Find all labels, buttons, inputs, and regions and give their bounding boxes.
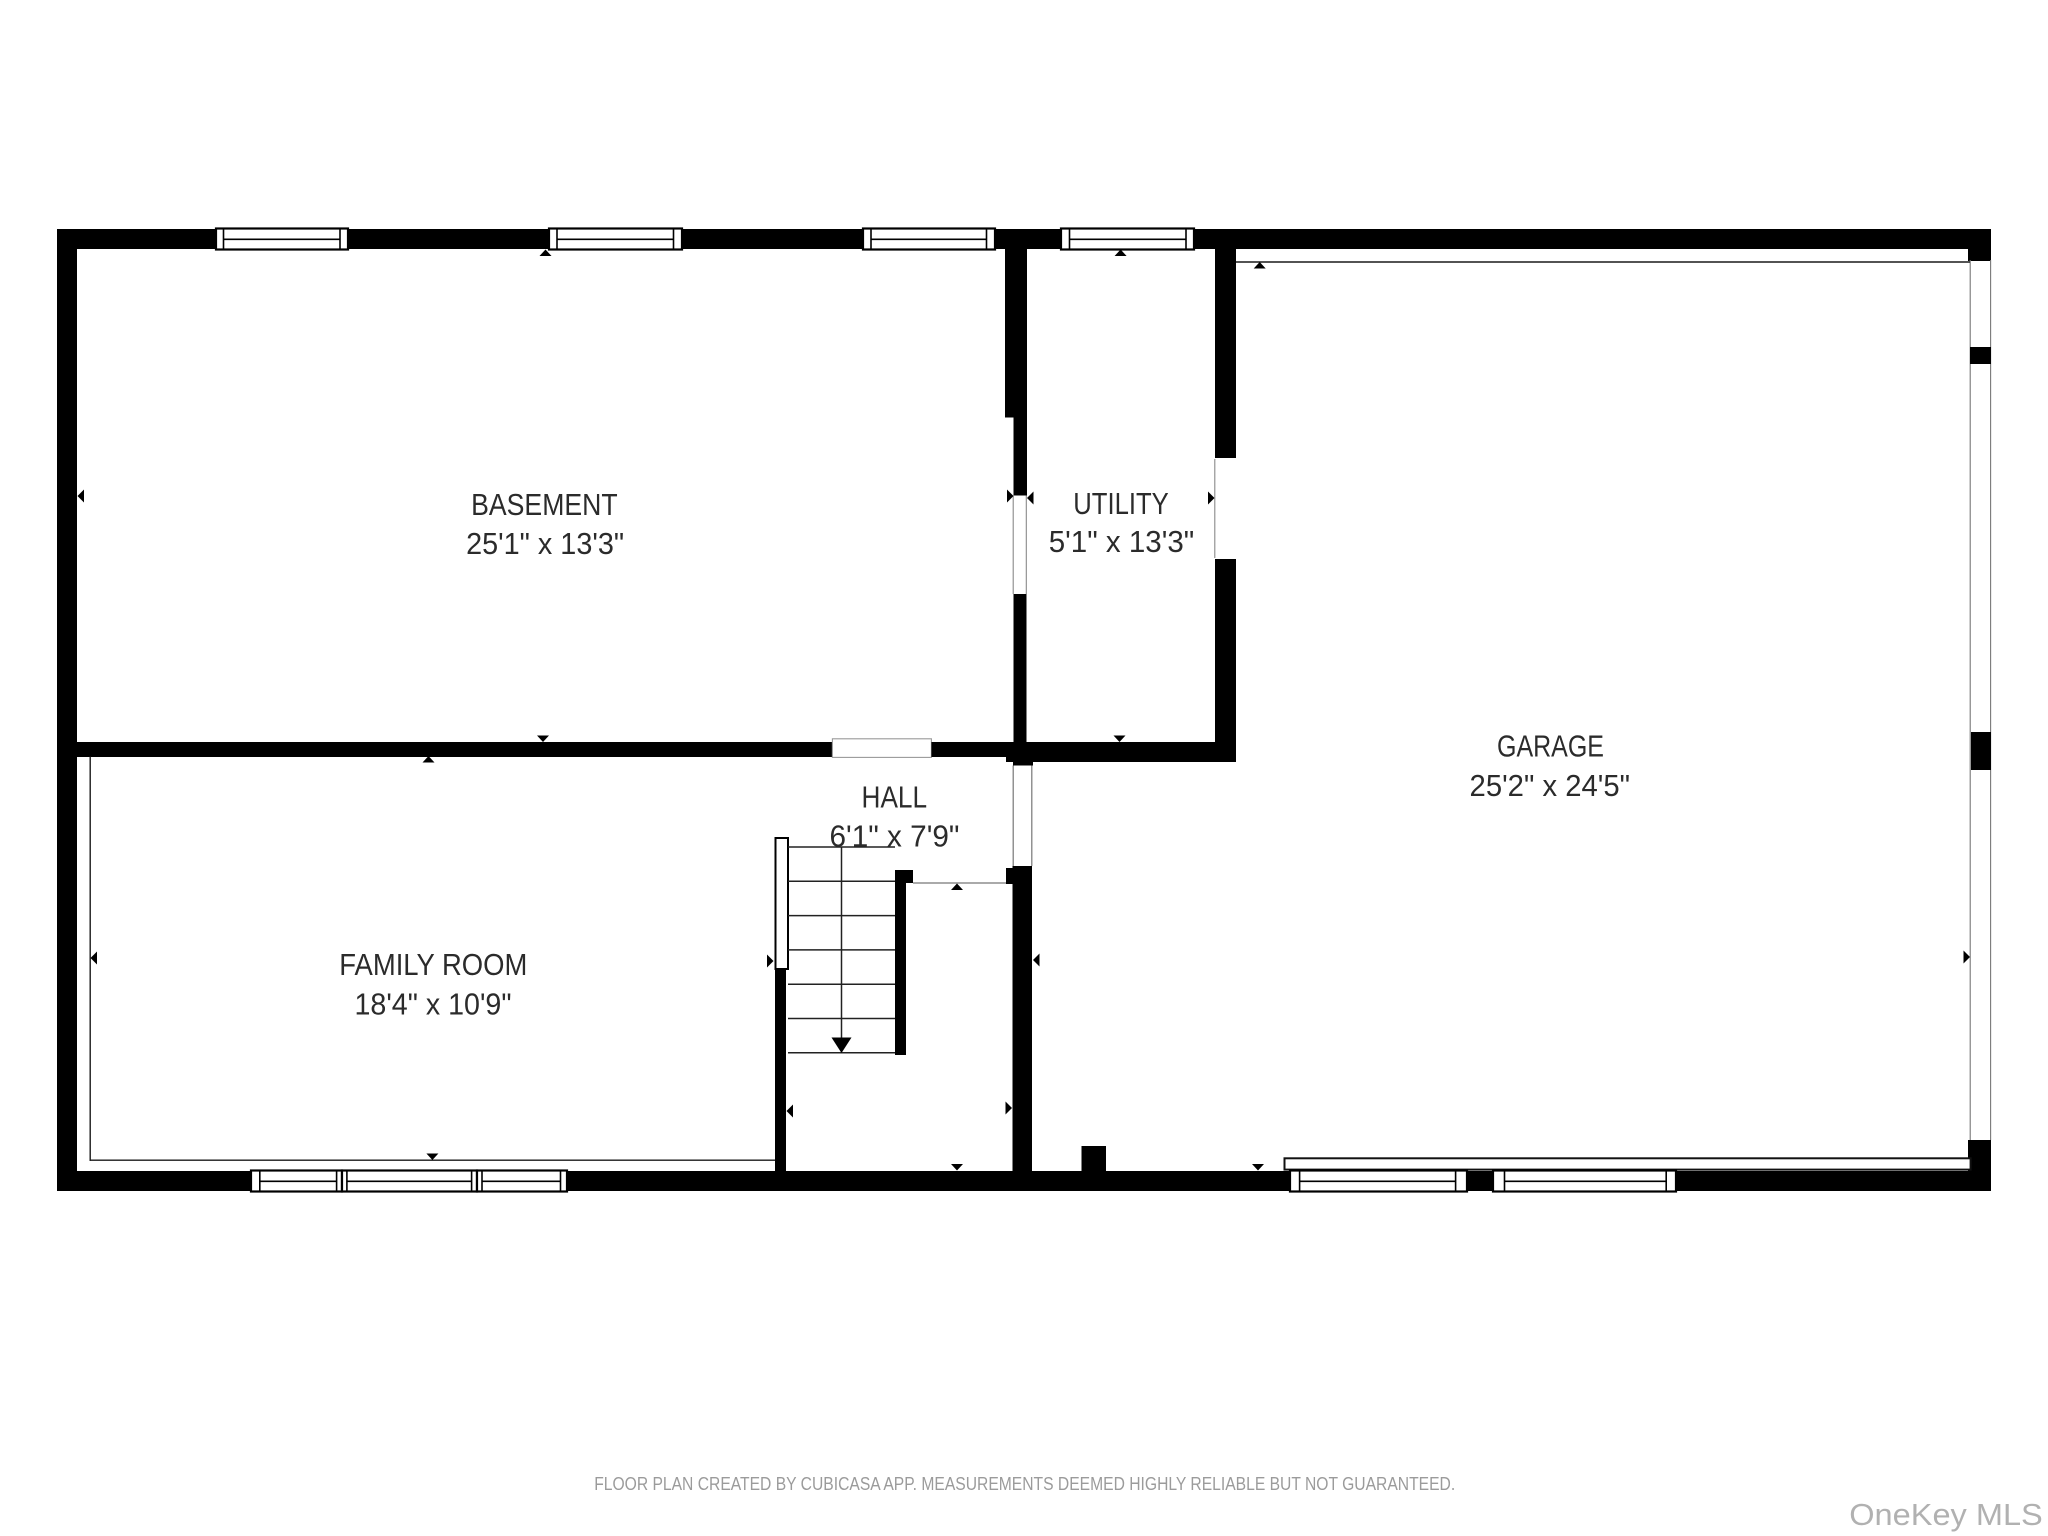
svg-text:25'2" x 24'5": 25'2" x 24'5" xyxy=(1470,768,1631,803)
svg-text:5'1" x 13'3": 5'1" x 13'3" xyxy=(1049,524,1195,559)
svg-text:25'1" x 13'3": 25'1" x 13'3" xyxy=(466,526,624,561)
svg-text:BASEMENT: BASEMENT xyxy=(471,487,618,522)
svg-text:FAMILY ROOM: FAMILY ROOM xyxy=(339,947,527,982)
svg-text:GARAGE: GARAGE xyxy=(1497,729,1604,764)
svg-text:FLOOR PLAN CREATED BY CUBICASA: FLOOR PLAN CREATED BY CUBICASA APP. MEAS… xyxy=(594,1474,1455,1494)
svg-text:18'4" x 10'9": 18'4" x 10'9" xyxy=(355,987,512,1022)
svg-text:OneKey MLS: OneKey MLS xyxy=(1849,1497,2043,1532)
svg-text:6'1" x 7'9": 6'1" x 7'9" xyxy=(830,819,960,854)
svg-text:HALL: HALL xyxy=(862,780,928,815)
svg-text:UTILITY: UTILITY xyxy=(1073,486,1169,521)
